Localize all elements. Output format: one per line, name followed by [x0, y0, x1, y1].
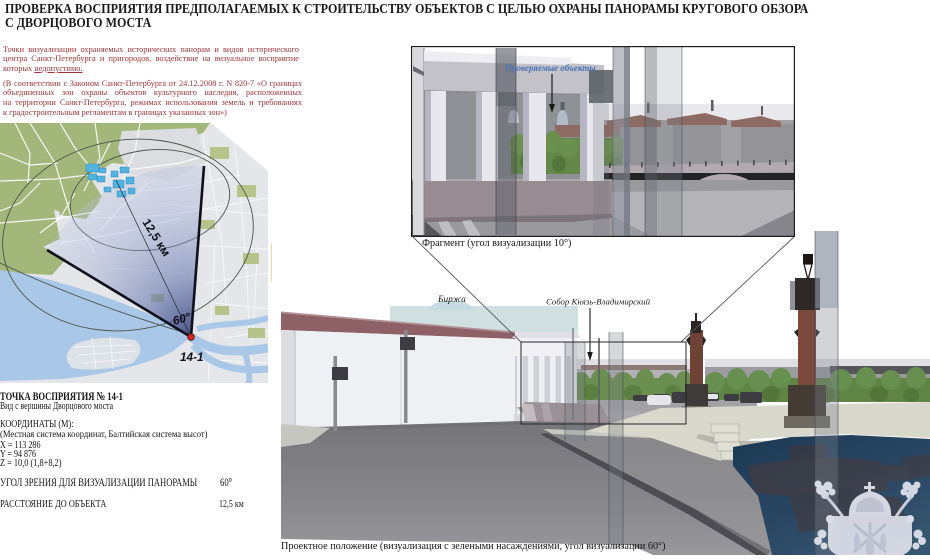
svg-text:14-1: 14-1 [180, 350, 204, 364]
svg-text:Собор Князь-Владимирский: Собор Князь-Владимирский [546, 297, 651, 307]
svg-text:Биржа: Биржа [437, 295, 466, 305]
svg-text:Проверяемые объекты: Проверяемые объекты [504, 64, 596, 74]
